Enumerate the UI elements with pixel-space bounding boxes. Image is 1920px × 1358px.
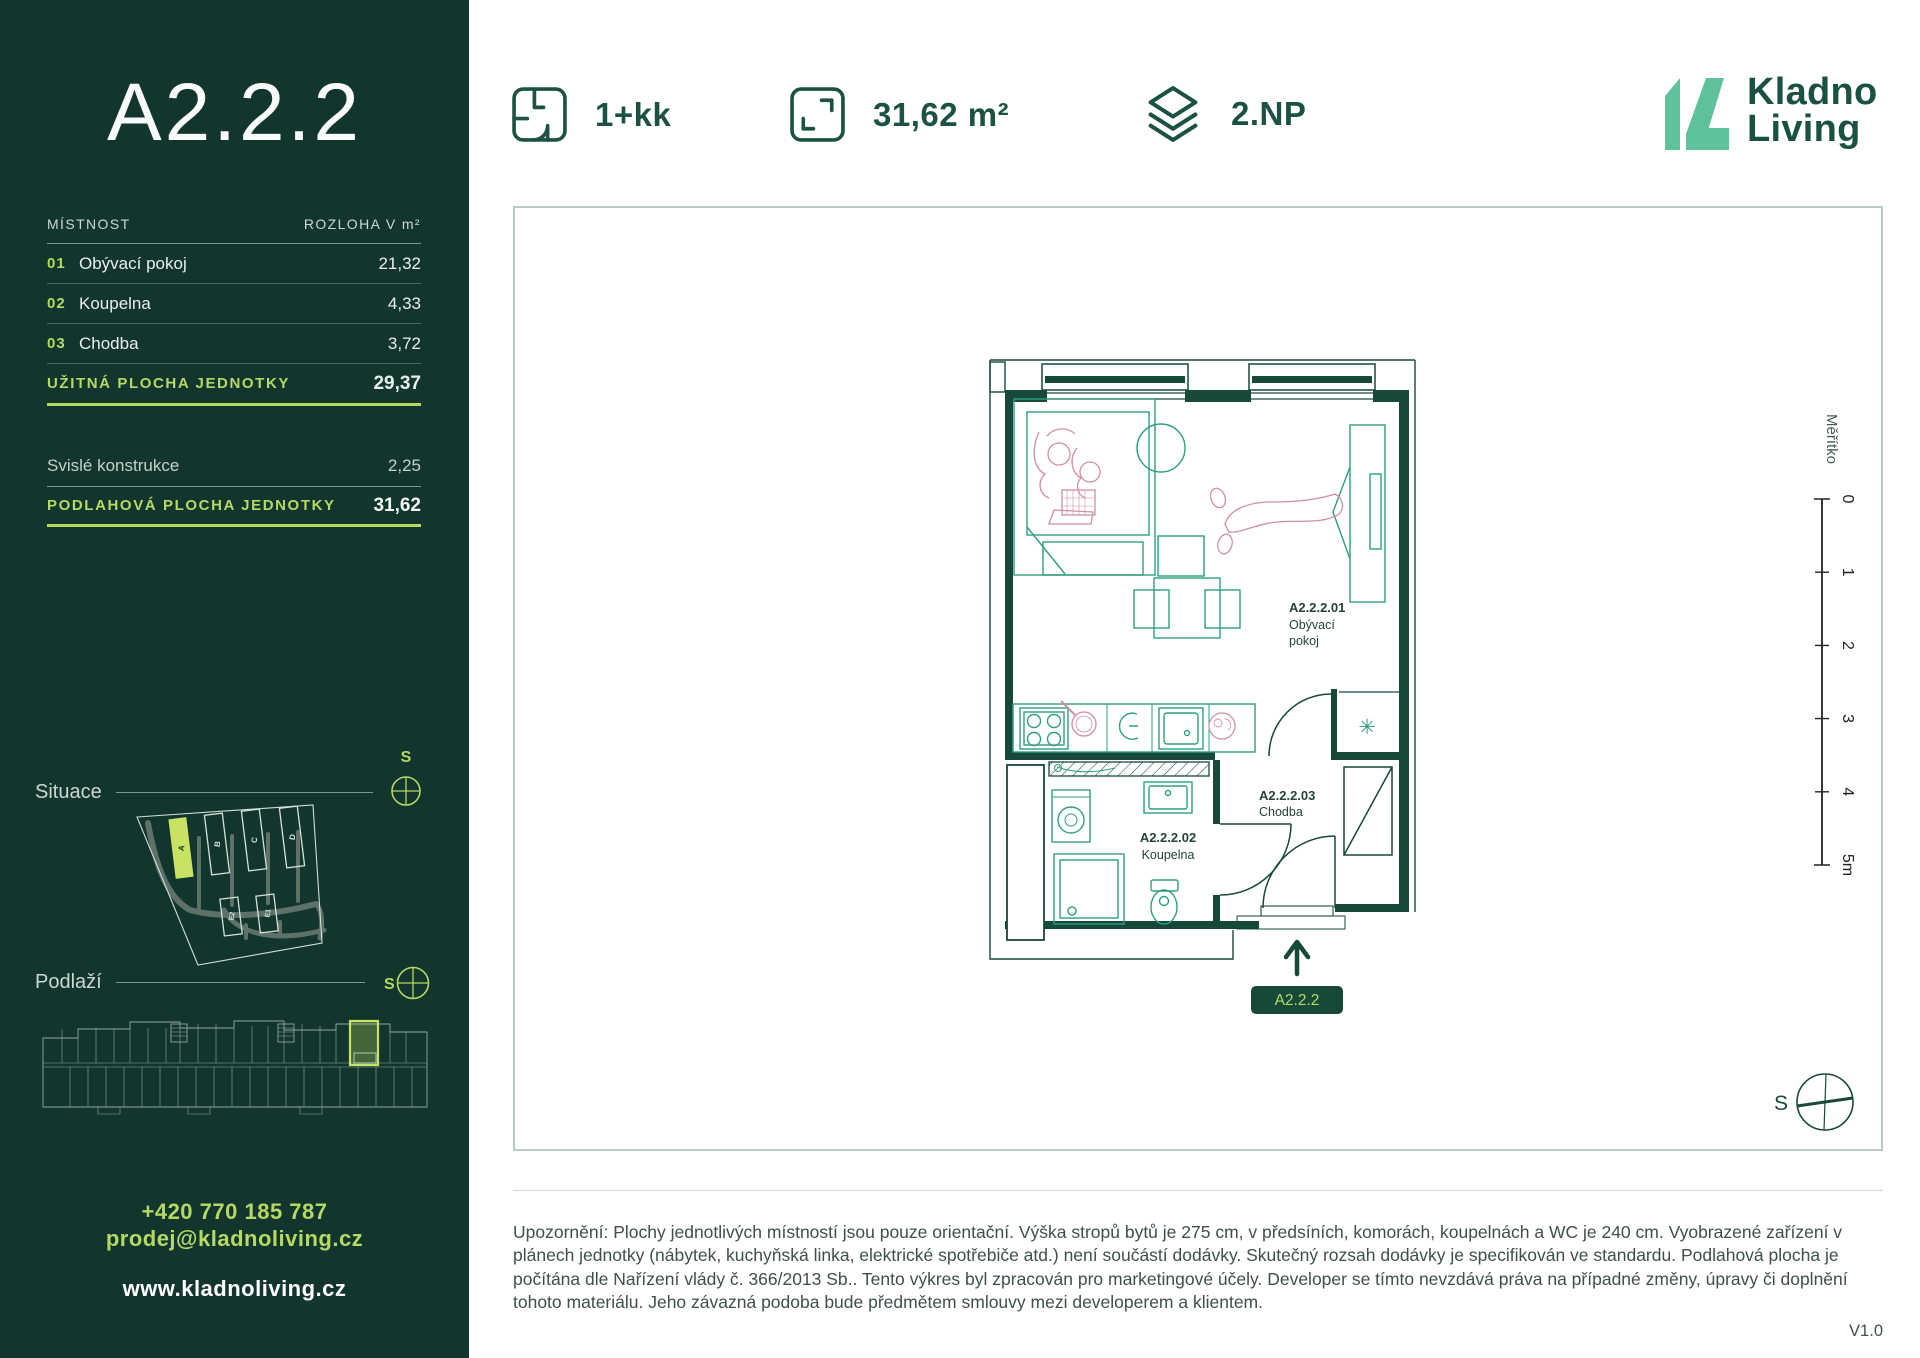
- room2-name: Koupelna: [1142, 848, 1195, 862]
- decorative-figures: [1034, 429, 1342, 739]
- tick-label: 5m: [1839, 854, 1856, 876]
- unit-badge-label: A2.2.2: [1275, 992, 1320, 1009]
- col-room: MÍSTNOST: [47, 216, 131, 232]
- floor-item: 2.NP: [1142, 83, 1306, 144]
- room3-id: A2.2.2.03: [1259, 788, 1315, 803]
- building-label: C: [250, 836, 260, 843]
- area-icon: [789, 86, 846, 143]
- table-row: 03 Chodba 3,72: [47, 324, 421, 364]
- room-area: 4,33: [388, 294, 421, 314]
- email-link[interactable]: prodej@kladnoliving.cz: [0, 1226, 469, 1252]
- disposition-item: 1+kk: [511, 86, 671, 143]
- floor-label: 2.NP: [1231, 95, 1306, 133]
- room-area: 21,32: [378, 254, 421, 274]
- building-label: E1: [264, 908, 272, 918]
- furniture: [1013, 399, 1385, 924]
- entrance-arrow: [1286, 942, 1308, 974]
- toilet: [1151, 880, 1178, 924]
- bathroom-sink: [1144, 782, 1192, 813]
- hatched-wall: [1049, 762, 1209, 776]
- building-label: D: [288, 833, 298, 840]
- phone-link[interactable]: +420 770 185 787: [0, 1199, 469, 1225]
- scale-ruler: Měřítko 0 1 2 3 4 5m: [1785, 400, 1875, 890]
- unit-title: A2.2.2: [0, 66, 469, 160]
- room1-name-l1: Obývací: [1289, 618, 1335, 632]
- tick-label: 2: [1839, 641, 1856, 650]
- disclaimer-text: Upozornění: Plochy jednotlivých místnost…: [513, 1221, 1885, 1314]
- area-item: 31,62 m²: [789, 86, 1009, 143]
- podlazi-rule: [116, 982, 365, 983]
- situace-rule: [116, 792, 373, 793]
- table-row: 02 Koupelna 4,33: [47, 284, 421, 324]
- kladno-living-logo-icon: [1665, 74, 1729, 150]
- tick-label: 1: [1839, 568, 1856, 577]
- room-number: 02: [47, 295, 79, 312]
- kitchen-counter: [1013, 704, 1255, 752]
- north-compass-icon: S: [388, 744, 424, 810]
- layers-icon: [1142, 83, 1204, 144]
- room3-name: Chodba: [1259, 805, 1303, 819]
- construction-value: 2,25: [388, 456, 421, 476]
- usable-area-row: UŽITNÁ PLOCHA JEDNOTKY 29,37: [47, 364, 421, 406]
- tick-label: 3: [1839, 714, 1856, 723]
- building-label: B: [213, 840, 223, 847]
- room2-id: A2.2.2.02: [1140, 830, 1196, 845]
- brand-line2: Living: [1747, 111, 1878, 148]
- site-boundary: [137, 805, 322, 965]
- compass-letter: S: [1774, 1092, 1788, 1115]
- floor-area-value: 31,62: [373, 495, 421, 517]
- podlazi-section-header: Podlaží: [35, 971, 365, 994]
- floor-strip-plan: [38, 1008, 433, 1120]
- compass-letter: S: [401, 749, 412, 766]
- room-table-header: MÍSTNOST ROZLOHA V m²: [47, 216, 421, 244]
- reclining-figure: [1208, 486, 1342, 555]
- usable-area-value: 29,37: [373, 373, 421, 395]
- couple-with-laptop: [1034, 429, 1100, 524]
- brand-text: Kladno Living: [1747, 74, 1878, 150]
- sidebar: A2.2.2 MÍSTNOST ROZLOHA V m² 01 Obývací …: [0, 0, 469, 1358]
- construction-label: Svislé konstrukce: [47, 456, 179, 476]
- floorplan-icon: [511, 86, 568, 143]
- usable-area-label: UŽITNÁ PLOCHA JEDNOTKY: [47, 375, 290, 392]
- floor-area-row: PODLAHOVÁ PLOCHA JEDNOTKY 31,62: [47, 487, 421, 527]
- scale-tick-labels: 0 1 2 3 4 5m: [1839, 495, 1856, 877]
- plan-compass-icon: S: [1762, 1067, 1862, 1137]
- tick-label: 4: [1839, 787, 1856, 796]
- scale-title: Měřítko: [1823, 414, 1840, 464]
- room-number: 01: [47, 255, 79, 272]
- bench: [1043, 542, 1143, 575]
- room1-id: A2.2.2.01: [1289, 600, 1345, 615]
- floor-area-label: PODLAHOVÁ PLOCHA JEDNOTKY: [47, 497, 336, 514]
- building-label: E2: [228, 911, 236, 921]
- room-table: MÍSTNOST ROZLOHA V m² 01 Obývací pokoj 2…: [47, 216, 421, 527]
- room-labels: A2.2.2.01 Obývací pokoj A2.2.2.02 Koupel…: [1140, 600, 1346, 862]
- dining-set: [1134, 578, 1240, 638]
- compass-letter: S: [384, 976, 395, 993]
- stairwell: [171, 1024, 294, 1042]
- wardrobe-tv: [1333, 425, 1385, 602]
- tick-label: 0: [1839, 495, 1856, 504]
- washing-machine: [1052, 790, 1090, 842]
- room-name: Chodba: [79, 334, 139, 354]
- floor-plan-panel: ✳: [513, 206, 1883, 1151]
- site-building-labels: A B C D E2 E1: [177, 833, 298, 921]
- construction-row: Svislé konstrukce 2,25: [47, 445, 421, 487]
- podlazi-label: Podlaží: [35, 971, 102, 994]
- side-table: [1158, 536, 1204, 576]
- footer-separator: [513, 1190, 1883, 1191]
- table-row: 01 Obývací pokoj 21,32: [47, 244, 421, 284]
- floor-plan-drawing: ✳: [987, 352, 1427, 1032]
- bed: [1014, 399, 1155, 575]
- room-name: Koupelna: [79, 294, 151, 314]
- situace-label: Situace: [35, 781, 102, 804]
- shower: [1054, 854, 1124, 924]
- version-label: V1.0: [1763, 1322, 1883, 1341]
- col-area: ROZLOHA V m²: [304, 216, 421, 232]
- disposition-label: 1+kk: [595, 96, 671, 134]
- room-number: 03: [47, 335, 79, 352]
- north-compass-icon: S: [374, 962, 434, 1004]
- brand-line1: Kladno: [1747, 74, 1878, 111]
- ac-unit-symbol: ✳: [1358, 716, 1376, 739]
- brand-logo: Kladno Living: [1665, 74, 1878, 150]
- website-link[interactable]: www.kladnoliving.cz: [0, 1276, 469, 1302]
- room-name: Obývací pokoj: [79, 254, 187, 274]
- site-plan: A B C D E2 E1: [128, 798, 346, 973]
- wall-pier: [1007, 765, 1044, 940]
- room1-name-l2: pokoj: [1289, 634, 1319, 648]
- ball: [1137, 424, 1185, 472]
- room-area: 3,72: [388, 334, 421, 354]
- area-label: 31,62 m²: [873, 96, 1009, 134]
